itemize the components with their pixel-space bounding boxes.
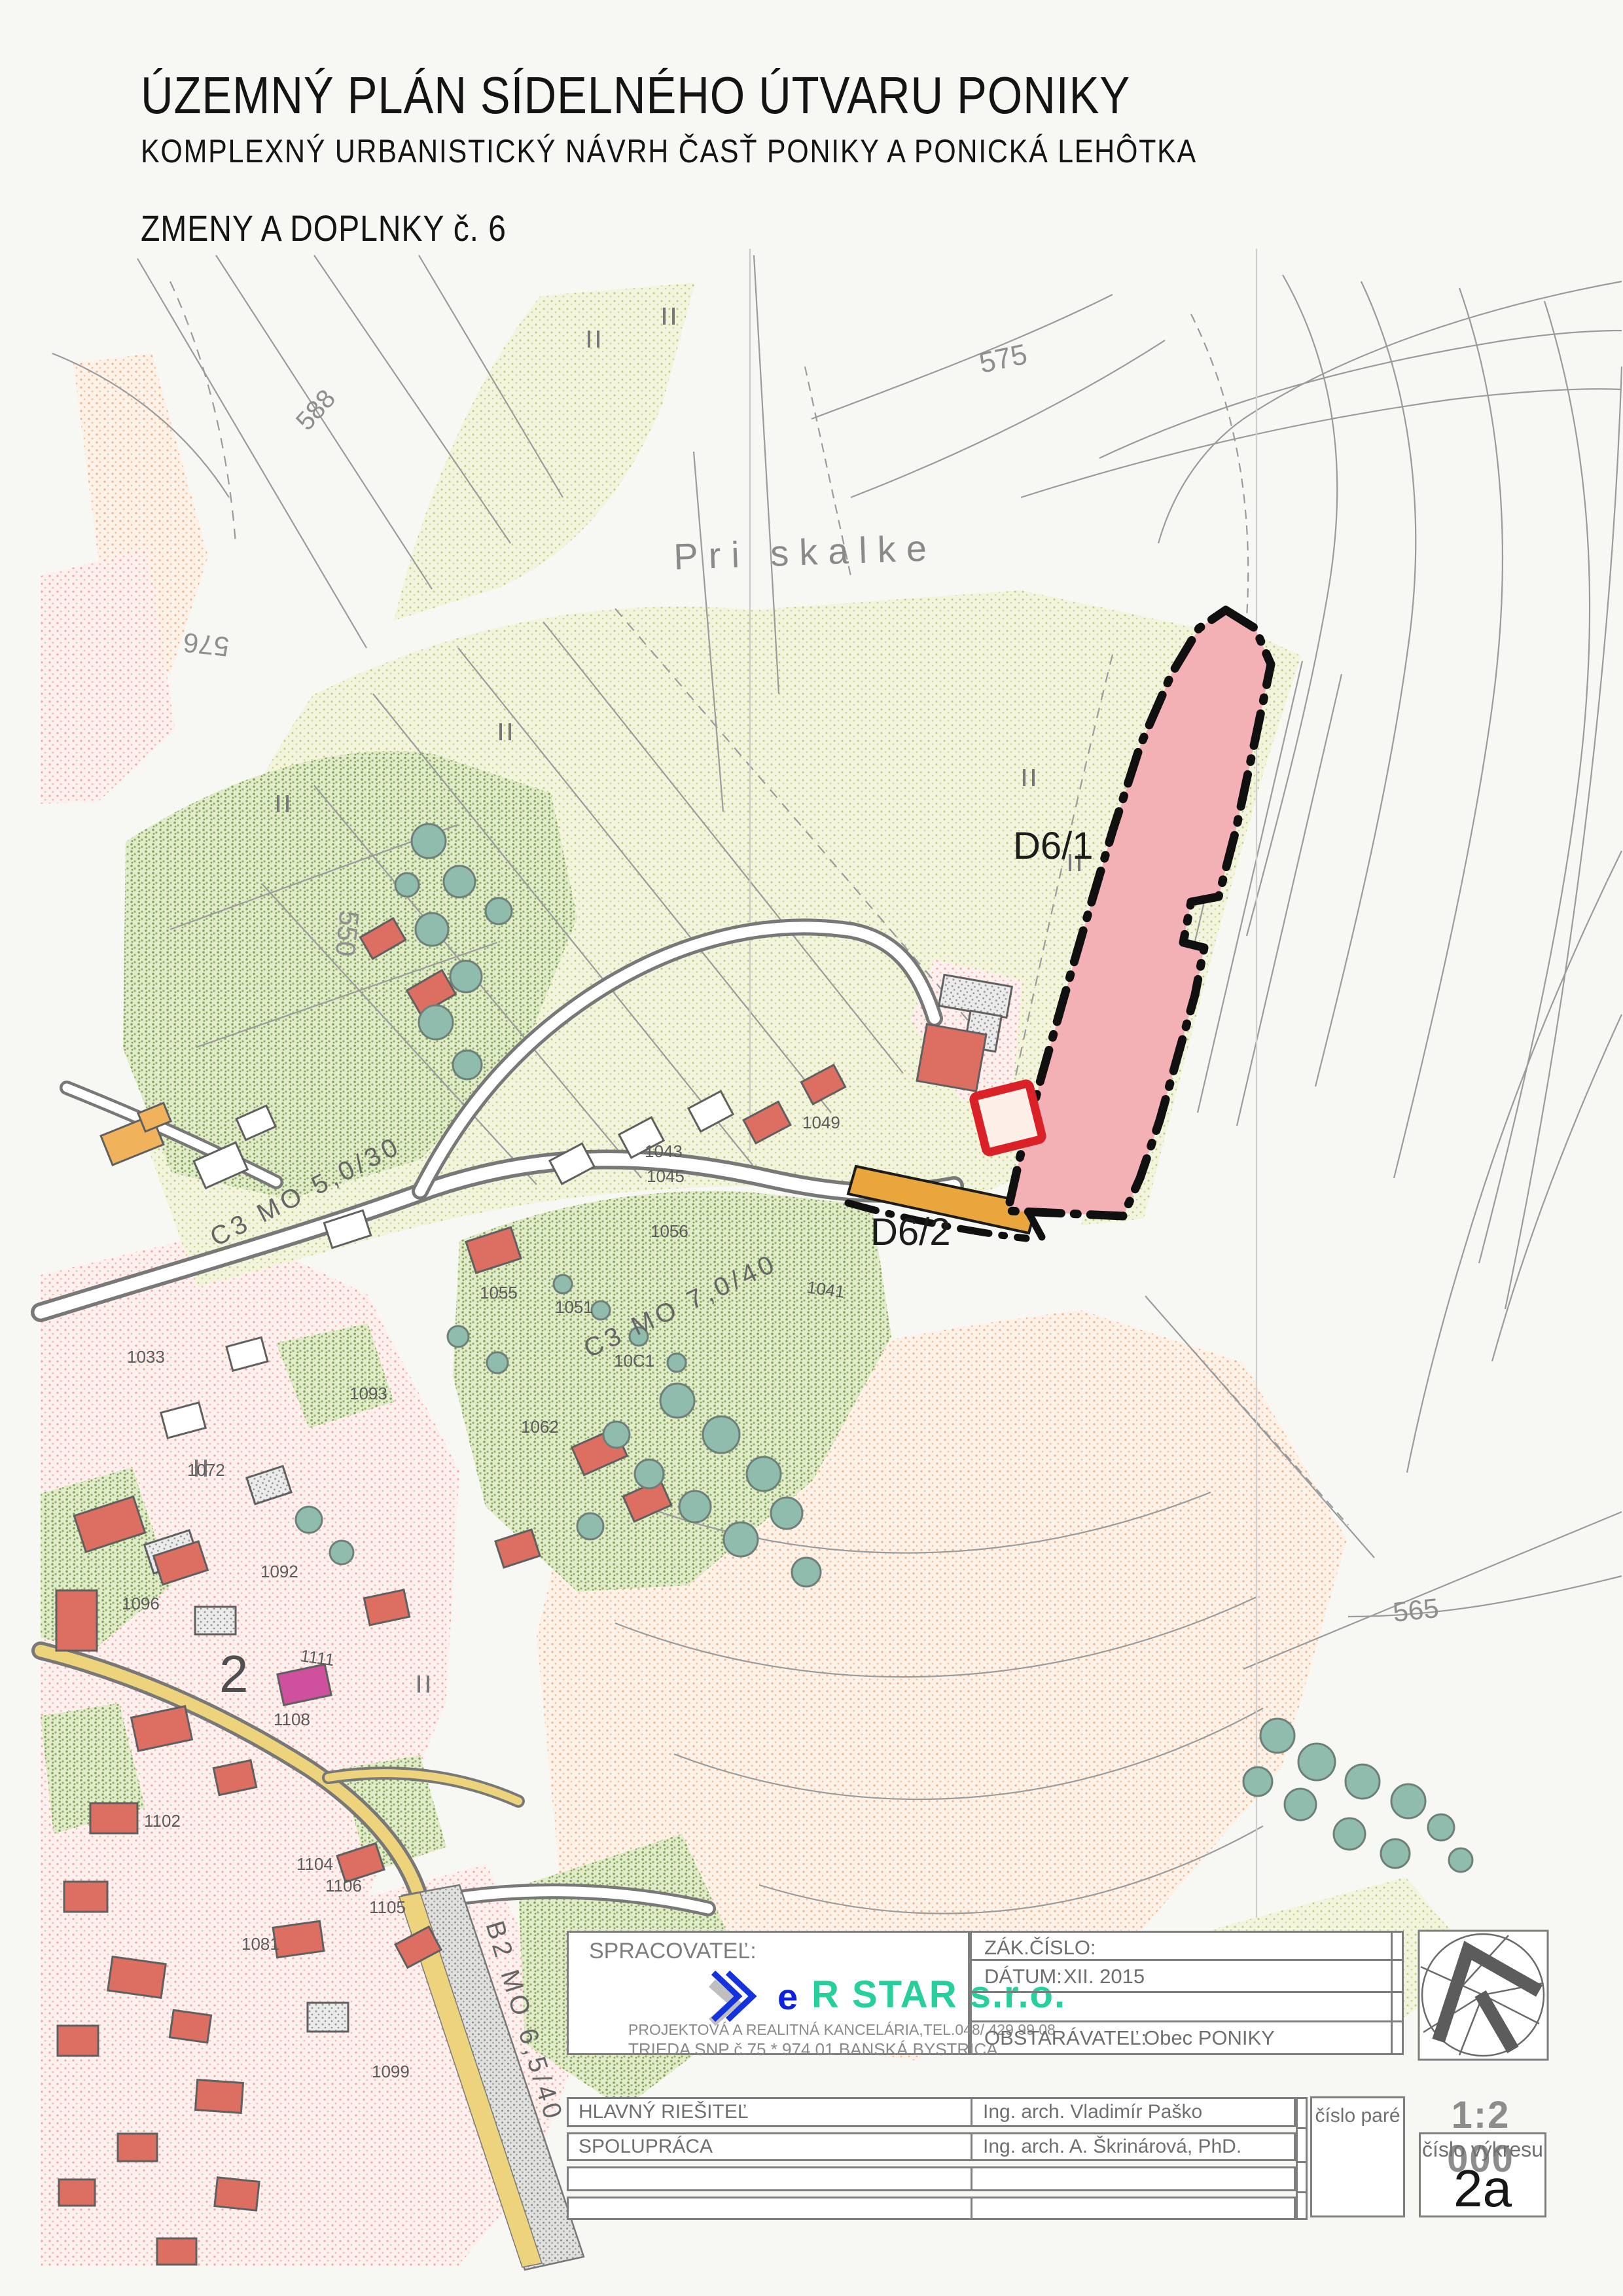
page-title: ÚZEMNÝ PLÁN SÍDELNÉHO ÚTVARU PONIKY xyxy=(141,65,1291,126)
page-edition: ZMENY A DOPLNKY č. 6 xyxy=(141,207,566,249)
table-row xyxy=(567,2197,1296,2220)
svg-text:1092: 1092 xyxy=(260,1562,298,1581)
svg-text:1108: 1108 xyxy=(274,1710,310,1729)
svg-text:1051: 1051 xyxy=(555,1297,593,1317)
contour-label-565: 565 xyxy=(1391,1592,1440,1628)
logo-chevron-icon xyxy=(707,1964,766,2026)
logo-address-line1: PROJEKTOVÁ A REALITNÁ KANCELÁRIA,TEL.048… xyxy=(628,2021,966,2039)
divider xyxy=(970,2020,1404,2022)
table-row xyxy=(567,2166,1296,2191)
divider xyxy=(971,2197,972,2220)
row-label: HLAVNÝ RIEŠITEĽ xyxy=(579,2101,749,2123)
logo-e: e xyxy=(777,1975,798,2018)
svg-text:1049: 1049 xyxy=(802,1113,840,1132)
red-square-marker xyxy=(973,1083,1043,1153)
spracovatel-label: SPRACOVATEĽ: xyxy=(589,1939,757,1964)
svg-text:1033: 1033 xyxy=(127,1347,165,1367)
svg-text:1102: 1102 xyxy=(144,1811,181,1831)
strip-column xyxy=(1296,2097,1308,2220)
row-value: Ing. arch. Vladimír Paško xyxy=(983,2101,1202,2123)
contour-label-576: 576 xyxy=(182,627,231,662)
svg-text:1096: 1096 xyxy=(122,1594,160,1613)
north-arrow xyxy=(1419,1931,1548,2060)
contour-label-575: 575 xyxy=(976,338,1030,380)
datum-label: DÁTUM: xyxy=(984,1965,1062,1988)
divider xyxy=(1296,2127,1308,2129)
divider xyxy=(1391,1931,1393,2055)
logo-address-line2: TRIEDA SNP č.75 * 974 01 BANSKÁ BYSTRICA xyxy=(628,2039,942,2060)
svg-text:1105: 1105 xyxy=(369,1897,406,1917)
row-label: SPOLUPRÁCA xyxy=(579,2136,713,2158)
svg-text:1062: 1062 xyxy=(521,1417,559,1437)
svg-text:1045: 1045 xyxy=(647,1166,685,1186)
district-number-label: 2 xyxy=(219,1645,249,1703)
divider xyxy=(971,2132,972,2161)
svg-text:1055: 1055 xyxy=(480,1283,518,1302)
svg-text:1056: 1056 xyxy=(651,1221,688,1241)
divider xyxy=(970,1991,1404,1993)
divider xyxy=(1296,2161,1308,2163)
svg-text:1099: 1099 xyxy=(372,2062,410,2081)
obstaravatel-label: OBSTARÁVATEĽ: xyxy=(984,2026,1147,2050)
obstaravatel-value: Obec PONIKY xyxy=(1144,2026,1275,2050)
datum-value: XII. 2015 xyxy=(1063,1965,1145,1988)
change-area-d62-label: D6/2 xyxy=(870,1211,951,1253)
svg-text:1072: 1072 xyxy=(187,1460,225,1480)
svg-text:1093: 1093 xyxy=(349,1384,387,1403)
place-label: Pri skalke xyxy=(673,527,938,577)
cislo-pare-label: číslo paré xyxy=(1310,2105,1405,2127)
plan-sheet: Pri skalke D6/1 D6/2 575 576 588 550 565… xyxy=(0,0,1623,2296)
divider xyxy=(971,2166,972,2191)
svg-text:10C1: 10C1 xyxy=(614,1351,654,1371)
contour-label-550: 550 xyxy=(330,909,365,958)
zak-cislo-label: ZÁK.ČÍSLO: xyxy=(984,1936,1096,1960)
drawing-number: 2a xyxy=(1419,2159,1546,2219)
page-subtitle: KOMPLEXNÝ URBANISTICKÝ NÁVRH ČASŤ PONIKY… xyxy=(141,132,1369,170)
divider xyxy=(1296,2191,1308,2193)
svg-text:1043: 1043 xyxy=(645,1141,683,1161)
change-area-d61-label: D6/1 xyxy=(1013,825,1094,867)
divider xyxy=(971,2097,972,2127)
contour-label-588: 588 xyxy=(291,384,341,436)
svg-text:1081: 1081 xyxy=(241,1934,279,1954)
svg-text:1106: 1106 xyxy=(325,1876,362,1895)
svg-text:1104: 1104 xyxy=(296,1854,333,1874)
row-value: Ing. arch. A. Škrinárová, PhD. xyxy=(983,2136,1241,2158)
